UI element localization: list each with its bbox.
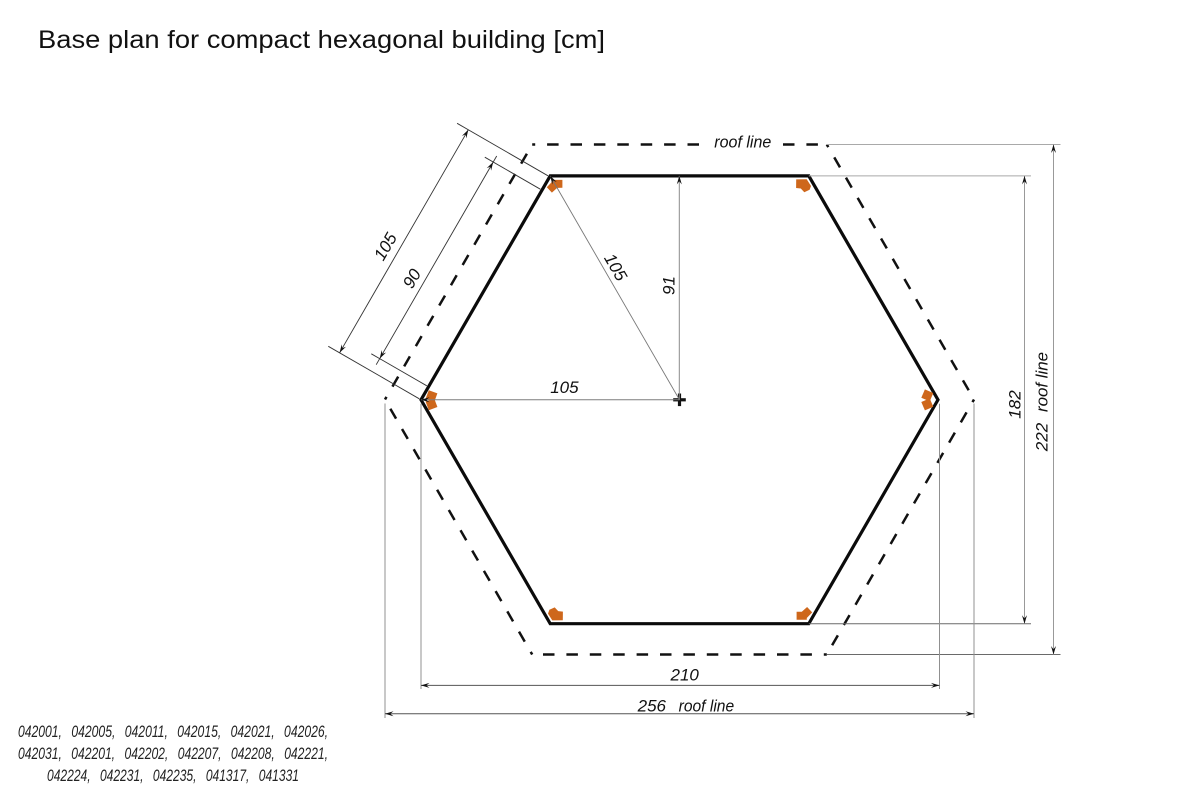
- svg-text:91: 91: [660, 276, 679, 295]
- svg-text:256: 256: [637, 697, 667, 716]
- svg-text:042224, 042231, 042235, 041: 042224, 042231, 042235, 041317, 041331: [47, 767, 299, 785]
- svg-text:042001, 042005, 042011, 042: 042001, 042005, 042011, 042015, 042021, …: [18, 723, 328, 741]
- svg-text:042031, 042201, 042202, 042: 042031, 042201, 042202, 042207, 042208, …: [18, 745, 328, 763]
- svg-text:105: 105: [550, 378, 579, 397]
- svg-text:roof line: roof line: [1033, 352, 1052, 412]
- svg-text:222: 222: [1033, 422, 1052, 452]
- svg-text:Base plan for compact hexagona: Base plan for compact hexagonal building…: [38, 26, 605, 54]
- svg-text:roof line: roof line: [714, 133, 771, 152]
- svg-text:roof line: roof line: [679, 697, 735, 716]
- svg-text:182: 182: [1006, 390, 1025, 419]
- svg-text:210: 210: [670, 666, 700, 685]
